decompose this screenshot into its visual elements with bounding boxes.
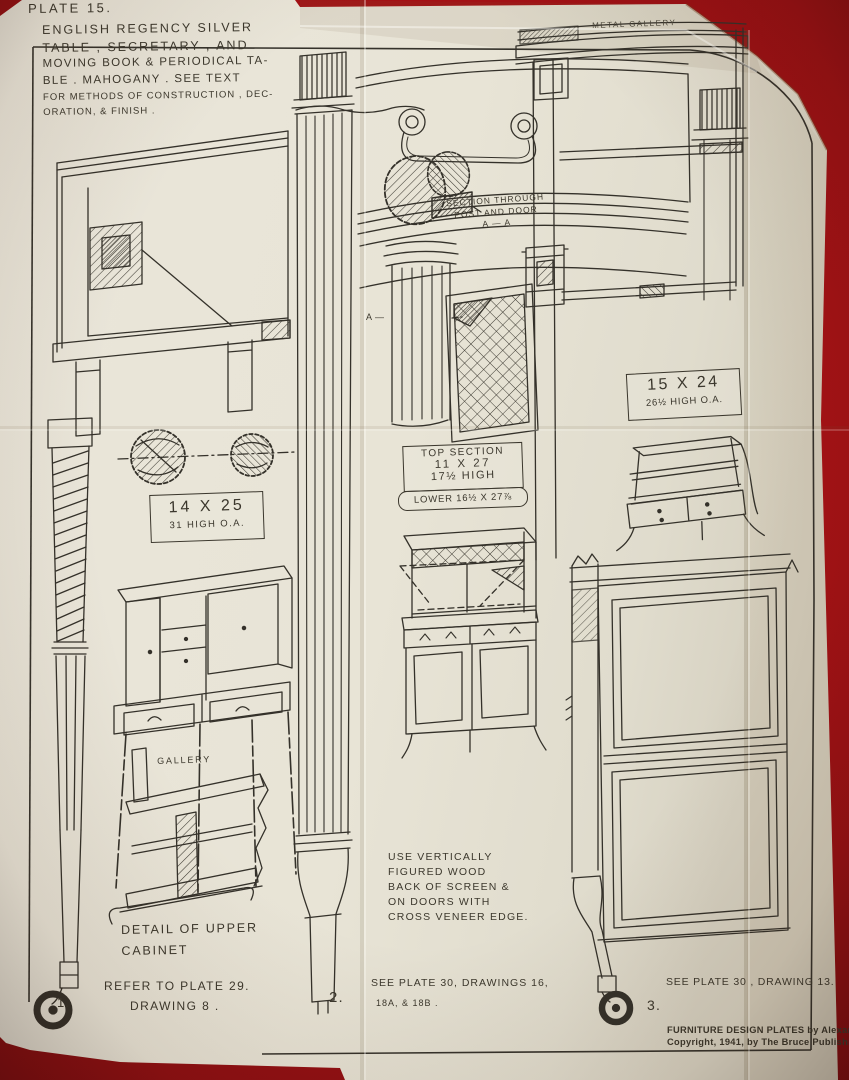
- title-block: ENGLISH REGENCY SILVER TABLE , SECRETARY…: [42, 21, 274, 117]
- veneer-note: USE VERTICALLY FIGURED WOOD BACK OF SCRE…: [388, 852, 529, 923]
- credit-line: Copyright, 1941, by The Bruce Publishing: [667, 1038, 849, 1047]
- figure-1-reference: DRAWING 8 .: [130, 1000, 220, 1012]
- figure-3-reference: SEE PLATE 30 , DRAWING 13.: [666, 977, 834, 988]
- figure-2-reference: 18A, & 18B .: [376, 999, 439, 1008]
- detail-caption: DETAIL OF UPPER CABINET: [121, 922, 258, 957]
- photo-of-furniture-plate: PLATE 15. ENGLISH REGENCY SILVER TABLE ,…: [0, 0, 849, 1080]
- figure-3-number: 3.: [647, 998, 661, 1012]
- credit-line: FURNITURE DESIGN PLATES by Alexander: [667, 1026, 849, 1035]
- gallery-label: GALLERY: [157, 755, 211, 766]
- title-line: ENGLISH REGENCY SILVER: [42, 21, 272, 37]
- plate-number: PLATE 15.: [28, 1, 113, 15]
- figure-1-reference: REFER TO PLATE 29.: [104, 980, 250, 992]
- title-line: MOVING BOOK & PERIODICAL TA-: [42, 56, 272, 71]
- section-marker-a: A —: [366, 313, 385, 322]
- figure-2-reference: SEE PLATE 30, DRAWINGS 16,: [371, 978, 549, 989]
- dimension-box-left: 14 X 25 31 HIGH O.A.: [149, 491, 265, 543]
- figure-2-number: 2.: [329, 990, 344, 1005]
- figure-1-number: 1.: [57, 996, 70, 1009]
- title-line: BLE . MAHOGANY . SEE TEXT: [43, 72, 273, 87]
- title-line: TABLE , SECRETARY , AND: [42, 38, 272, 54]
- dimension-box-center: TOP SECTION 11 X 27 17½ HIGH: [402, 442, 524, 492]
- title-line: FOR METHODS OF CONSTRUCTION , DEC-: [43, 90, 273, 103]
- credit-block: FURNITURE DESIGN PLATES by Alexander Cop…: [667, 1026, 849, 1047]
- dimension-box-right: 15 X 24 26½ HIGH O.A.: [626, 368, 742, 421]
